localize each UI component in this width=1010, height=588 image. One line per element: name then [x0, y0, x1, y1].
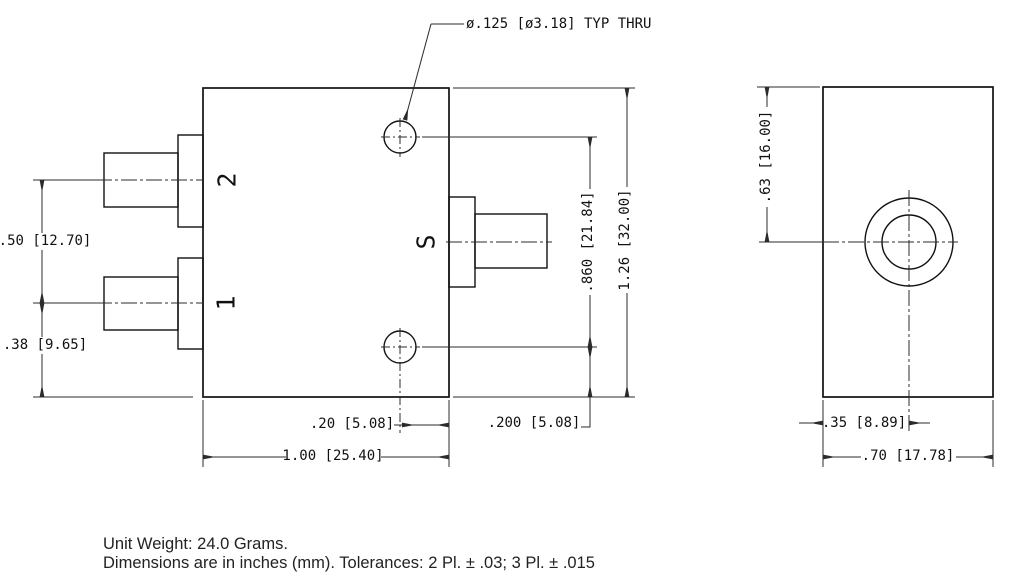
- note-tolerances: Dimensions are in inches (mm). Tolerance…: [103, 554, 595, 572]
- dimensions-side: .63 [16.00] .35 [8.89] .70 [17.78]: [757, 87, 993, 467]
- port2-label: 2: [213, 172, 242, 187]
- port2-flange: [178, 135, 203, 227]
- notes: Unit Weight: 24.0 Grams. Dimensions are …: [103, 535, 595, 572]
- s-port-label: S: [412, 234, 441, 249]
- dim-hole-to-base: .200 [5.08]: [488, 415, 581, 431]
- dim-bore-from-left: .35 [8.89]: [822, 415, 906, 431]
- hole-callout-leader: [405, 24, 464, 120]
- dim-port1-to-base: .38 [9.65]: [3, 337, 87, 353]
- dim-hole-to-right-edge: .20 [5.08]: [310, 416, 394, 432]
- dim-port-spacing: .50 [12.70]: [0, 233, 91, 249]
- dim-overall-width-side: .70 [17.78]: [862, 448, 955, 464]
- dim-overall-width-front: 1.00 [25.40]: [282, 448, 383, 464]
- hole-callout-text: ø.125 [ø3.18] TYP THRU: [466, 16, 651, 32]
- note-unit-weight: Unit Weight: 24.0 Grams.: [103, 535, 288, 553]
- centerlines-front: [33, 118, 552, 433]
- drawing-page: .50 [12.70] .38 [9.65] .860 [21.84] 1.26…: [0, 0, 1010, 588]
- dim-hole-spacing: .860 [21.84]: [580, 191, 596, 292]
- port1-label: 1: [212, 295, 241, 310]
- dimensions-front: .50 [12.70] .38 [9.65] .860 [21.84] 1.26…: [0, 88, 635, 467]
- dim-bore-from-top: .63 [16.00]: [758, 111, 774, 204]
- dim-overall-height: 1.26 [32.00]: [617, 189, 633, 290]
- technical-drawing: .50 [12.70] .38 [9.65] .860 [21.84] 1.26…: [0, 0, 1010, 588]
- s-port-barrel: [475, 214, 547, 268]
